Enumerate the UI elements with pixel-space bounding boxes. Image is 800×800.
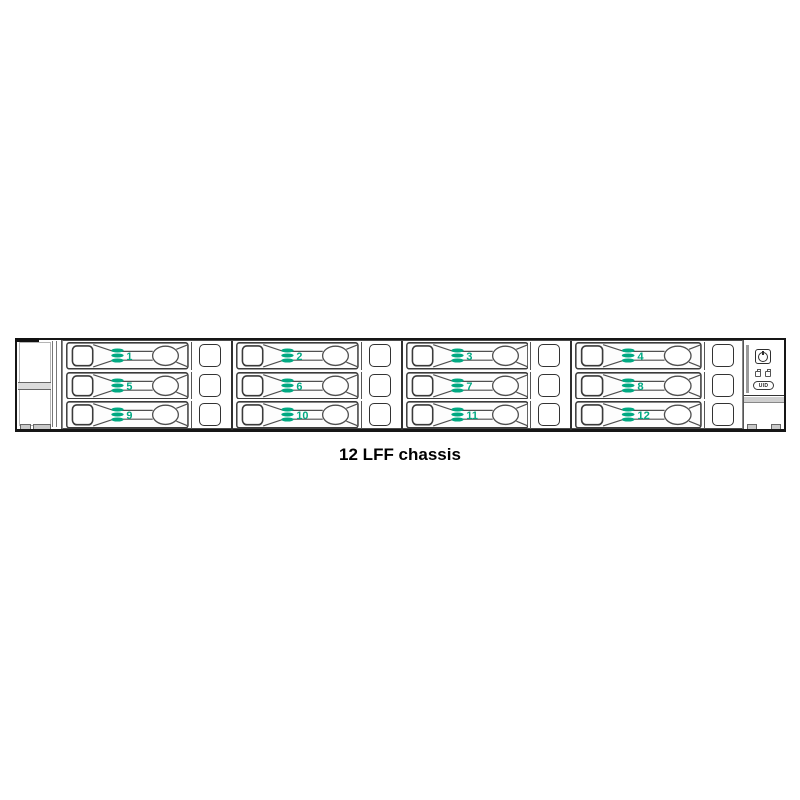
drive-tray: 11 bbox=[406, 401, 529, 429]
ear-middle-band bbox=[18, 382, 51, 390]
ear-lower-band bbox=[744, 397, 784, 403]
bay-number: 1 bbox=[126, 351, 132, 363]
power-button bbox=[755, 349, 771, 364]
tray-latch-button bbox=[242, 405, 262, 425]
tray-latch-button bbox=[72, 375, 92, 395]
bay-number: 2 bbox=[296, 351, 302, 363]
handle-oval bbox=[322, 405, 348, 424]
tray-latch-button bbox=[412, 375, 432, 395]
drive-bay: 8 bbox=[572, 371, 742, 401]
latch-panel bbox=[704, 342, 741, 370]
disk-stack-icon bbox=[622, 348, 635, 362]
bay-number: 7 bbox=[466, 380, 472, 392]
tray-latch-button bbox=[582, 346, 603, 366]
drive-tray: 9 bbox=[66, 401, 189, 429]
handle-oval bbox=[492, 376, 518, 395]
handle-oval bbox=[153, 376, 179, 395]
release-latch bbox=[538, 344, 560, 367]
release-latch bbox=[199, 344, 221, 367]
handle-oval bbox=[665, 376, 692, 395]
latch-panel bbox=[530, 401, 567, 429]
drive-tray: 2 bbox=[236, 342, 359, 370]
tray-latch-button bbox=[582, 405, 603, 425]
latch-panel bbox=[191, 342, 228, 370]
drive-bay: 11 bbox=[403, 400, 573, 430]
tray-latch-button bbox=[242, 346, 262, 366]
disk-stack-icon bbox=[111, 348, 123, 362]
latch-panel bbox=[530, 342, 567, 370]
drive-tray: 1 bbox=[66, 342, 189, 370]
disk-stack-icon bbox=[111, 378, 123, 392]
disk-stack-icon bbox=[281, 408, 293, 422]
release-latch bbox=[712, 344, 734, 367]
handle-oval bbox=[322, 346, 348, 365]
latch-panel bbox=[530, 372, 567, 400]
disk-stack-icon bbox=[622, 378, 635, 392]
bay-number: 4 bbox=[638, 351, 645, 363]
disk-stack-icon bbox=[451, 378, 463, 392]
diagram-canvas: 1 2 bbox=[0, 0, 800, 800]
drive-bay: 10 bbox=[233, 400, 403, 430]
release-latch bbox=[369, 344, 391, 367]
disk-stack-icon bbox=[281, 348, 293, 362]
handle-oval bbox=[492, 346, 518, 365]
drive-tray: 10 bbox=[236, 401, 359, 429]
drive-bay: 9 bbox=[63, 400, 233, 430]
bay-number: 3 bbox=[466, 351, 472, 363]
release-latch bbox=[199, 374, 221, 397]
release-latch bbox=[712, 403, 734, 426]
tray-latch-button bbox=[582, 375, 603, 395]
release-latch bbox=[538, 403, 560, 426]
drive-tray: 7 bbox=[406, 372, 529, 400]
ear-foot bbox=[747, 424, 757, 429]
ear-vertical-line bbox=[52, 341, 57, 427]
drive-tray: 4 bbox=[575, 342, 702, 370]
drive-bay: 2 bbox=[233, 341, 403, 371]
handle-oval bbox=[322, 376, 348, 395]
latch-panel bbox=[704, 401, 741, 429]
drive-bay: 6 bbox=[233, 371, 403, 401]
disk-stack-icon bbox=[451, 408, 463, 422]
release-latch bbox=[712, 374, 734, 397]
drive-bay: 5 bbox=[63, 371, 233, 401]
health-led-icon bbox=[755, 371, 761, 377]
drive-bay: 12 bbox=[572, 400, 742, 430]
nic-status-led-icon bbox=[765, 371, 771, 377]
handle-oval bbox=[153, 346, 179, 365]
tray-latch-button bbox=[72, 405, 92, 425]
drive-bay-grid: 1 2 bbox=[63, 341, 742, 428]
drive-tray: 8 bbox=[575, 372, 702, 400]
release-latch bbox=[369, 374, 391, 397]
tray-latch-button bbox=[72, 346, 92, 366]
drive-bay: 3 bbox=[403, 341, 573, 371]
drive-tray: 12 bbox=[575, 401, 702, 429]
release-latch bbox=[538, 374, 560, 397]
bay-number: 8 bbox=[638, 380, 644, 392]
drive-bay: 1 bbox=[63, 341, 233, 371]
disk-stack-icon bbox=[451, 348, 463, 362]
drive-tray: 3 bbox=[406, 342, 529, 370]
right-rack-ear: UID bbox=[743, 340, 784, 429]
release-latch bbox=[369, 403, 391, 426]
left-rack-ear bbox=[17, 340, 62, 429]
bay-number: 10 bbox=[296, 410, 308, 422]
disk-stack-icon bbox=[111, 408, 123, 422]
handle-oval bbox=[492, 405, 518, 424]
tray-latch-button bbox=[412, 346, 432, 366]
disk-stack-icon bbox=[281, 378, 293, 392]
drive-bay-area: 1 2 bbox=[62, 340, 743, 429]
latch-panel bbox=[191, 401, 228, 429]
latch-panel bbox=[361, 372, 398, 400]
ear-foot bbox=[20, 424, 31, 429]
latch-panel bbox=[704, 372, 741, 400]
drive-tray: 5 bbox=[66, 372, 189, 400]
drive-bay: 4 bbox=[572, 341, 742, 371]
handle-oval bbox=[153, 405, 179, 424]
handle-oval bbox=[665, 405, 692, 424]
latch-panel bbox=[191, 372, 228, 400]
bay-number: 6 bbox=[296, 380, 302, 392]
ear-divider-line bbox=[744, 395, 784, 396]
bay-number: 9 bbox=[126, 410, 132, 422]
tray-latch-button bbox=[242, 375, 262, 395]
drive-bay: 7 bbox=[403, 371, 573, 401]
server-chassis-front: 1 2 bbox=[15, 338, 786, 432]
drive-tray: 6 bbox=[236, 372, 359, 400]
release-latch bbox=[199, 403, 221, 426]
ear-rail-bar bbox=[746, 345, 749, 393]
ear-foot bbox=[33, 424, 51, 429]
bay-number: 5 bbox=[126, 380, 132, 392]
latch-panel bbox=[361, 401, 398, 429]
uid-button: UID bbox=[753, 381, 774, 390]
latch-panel bbox=[361, 342, 398, 370]
ear-foot bbox=[771, 424, 781, 429]
caption: 12 LFF chassis bbox=[0, 445, 800, 465]
disk-stack-icon bbox=[622, 408, 635, 422]
power-icon bbox=[758, 352, 768, 362]
bay-number: 11 bbox=[466, 410, 477, 422]
bay-number: 12 bbox=[638, 410, 651, 422]
handle-oval bbox=[665, 346, 692, 365]
tray-latch-button bbox=[412, 405, 432, 425]
